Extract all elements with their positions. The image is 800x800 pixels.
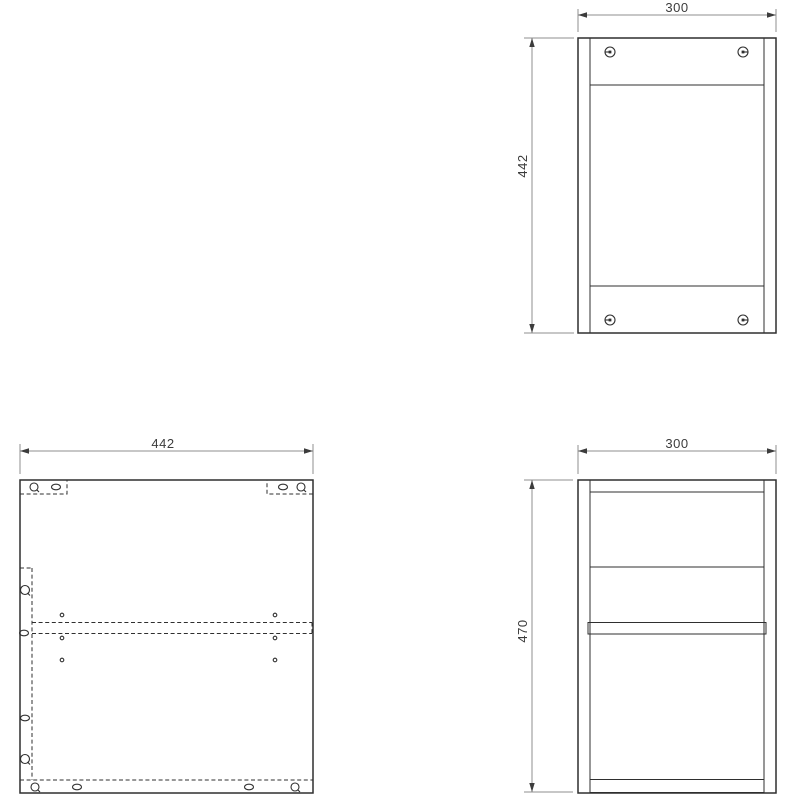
- panel-view: 442: [20, 436, 314, 793]
- front-height-label: 442: [515, 154, 530, 177]
- arrowhead-left: [578, 448, 587, 453]
- cam-symbol: [30, 483, 39, 492]
- pin-hole: [60, 636, 64, 640]
- screw-symbol-bottom-left: [605, 315, 615, 325]
- screw-symbol-top-left: [605, 47, 615, 57]
- front-view: 300 442: [515, 0, 776, 333]
- panel-width-label: 442: [151, 436, 174, 451]
- arrowhead-right: [767, 12, 776, 17]
- arrowhead-top: [529, 38, 534, 47]
- slot-hole-symbol: [20, 630, 29, 636]
- drawing-sheet: 300 442: [0, 0, 800, 800]
- cam-symbol: [297, 483, 306, 492]
- cam-symbol: [21, 755, 31, 765]
- pin-hole: [273, 613, 277, 617]
- pin-hole: [273, 658, 277, 662]
- arrowhead-left: [20, 448, 29, 453]
- side-width-dimension: 300: [578, 436, 776, 474]
- back-rail-hidden-strip: [20, 568, 32, 780]
- front-height-dimension: 442: [515, 38, 574, 333]
- front-width-label: 300: [665, 0, 688, 15]
- pin-hole: [60, 613, 64, 617]
- screw-symbol-bottom-right: [738, 315, 748, 325]
- arrowhead-right: [304, 448, 313, 453]
- arrowhead-top: [529, 480, 534, 489]
- slot-hole-symbol: [73, 784, 82, 790]
- screw-symbol-top-right: [738, 47, 748, 57]
- slot-hole-symbol: [21, 715, 30, 721]
- panel-width-dimension: 442: [20, 436, 313, 474]
- arrowhead-right: [767, 448, 776, 453]
- slot-hole-symbol: [245, 784, 254, 790]
- side-outer-frame: [578, 480, 776, 793]
- arrowhead-left: [578, 12, 587, 17]
- cam-symbol: [291, 783, 300, 792]
- front-outer-frame: [578, 38, 776, 333]
- side-height-dimension: 470: [515, 480, 573, 792]
- side-height-label: 470: [515, 619, 530, 642]
- panel-outline: [20, 480, 313, 793]
- technical-drawing-canvas: 300 442: [0, 0, 800, 800]
- front-width-dimension: 300: [578, 0, 776, 32]
- arrowhead-bottom: [529, 783, 534, 792]
- adjustable-shelf-front: [588, 623, 766, 635]
- slot-hole-symbol: [52, 484, 61, 490]
- bottom-rail: [590, 780, 764, 793]
- arrowhead-bottom: [529, 324, 534, 333]
- side-view: 300 470: [515, 436, 776, 793]
- pin-hole: [60, 658, 64, 662]
- slot-hole-symbol: [279, 484, 288, 490]
- side-width-label: 300: [665, 436, 688, 451]
- cam-symbol: [31, 783, 40, 792]
- cam-symbol: [21, 586, 31, 596]
- pin-hole: [273, 636, 277, 640]
- shelf-hidden-band: [32, 623, 312, 634]
